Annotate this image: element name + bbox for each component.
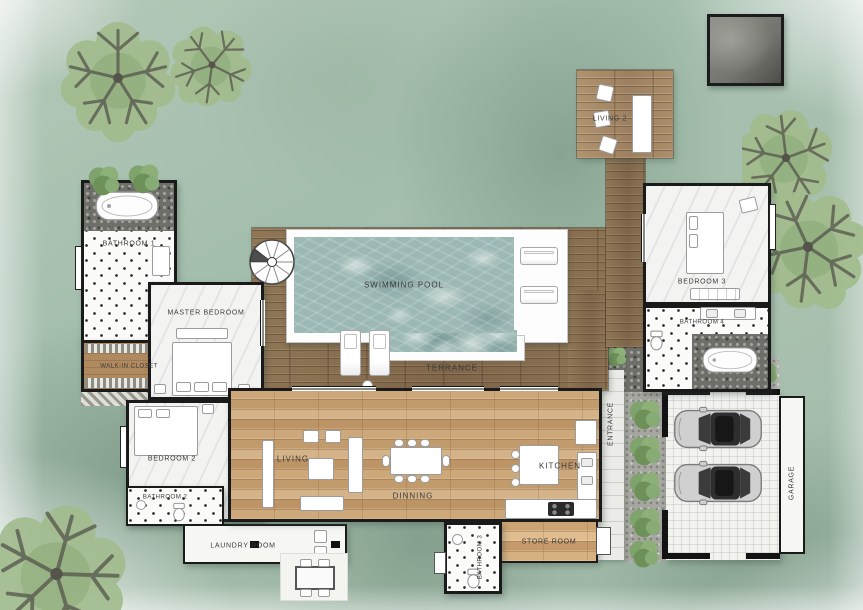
room-label-laundry: LAUNDRY ROOM [210,543,275,550]
label-entrance: ENTRANCE [608,402,615,446]
tree-icon [162,15,262,115]
bar-stool [511,464,520,473]
dining-table [390,447,442,475]
room-label-bathroom2: BATHROOM 2 [143,494,187,501]
shrub-icon [627,468,663,504]
window-sill [75,246,82,290]
bar-stool [511,450,520,459]
bedroom3-dresser [690,288,740,300]
vanity-sink [734,309,746,318]
media-console [262,440,274,508]
room-label-bedroom2: BEDROOM 2 [148,456,196,463]
shrub-icon [627,396,663,432]
pillow [194,382,209,392]
room-label-bedroom3: BEDROOM 3 [678,279,726,286]
stove [548,502,574,516]
pillow [156,409,170,418]
window-sill [769,204,776,250]
master-bench [176,328,228,339]
room-label-bathroom1: BATHROOM 1 [103,241,156,248]
garage-wall [746,553,780,559]
fridge [575,420,597,445]
vanity-sink [706,309,718,318]
bedroom3-sliding-door [641,214,646,262]
label-swimming-pool: SWIMMING POOL [364,281,444,290]
kitchen-sink [581,476,593,485]
car-icon [670,406,766,452]
washer [314,530,327,543]
outdoor-chair [318,589,330,597]
bathroom2-sink [136,500,146,510]
bar-stool [511,478,520,487]
shower-head [452,534,463,545]
living2-cushion [596,84,615,103]
nightstand [202,404,214,414]
pillow [138,409,152,418]
room-label-walk-in-closet: WALK-IN CLOSET [100,363,158,370]
terrace-deck-east [568,290,608,390]
room-label-living: LIVING [277,455,309,464]
outdoor-chair [300,589,312,597]
room-label-living2: LIVING 2 [593,116,627,123]
room-label-bathroom3: BATHROOM 3 [477,535,484,579]
garage-wall [666,553,710,559]
room-label-kitchen: KITCHEN [539,462,581,471]
sliding-glass-door [500,386,558,391]
dining-chair [420,475,430,483]
toilet-icon [649,330,664,351]
room-label-dinning: DINNING [393,492,434,501]
deck-lounger [340,330,361,376]
armchair [325,430,341,443]
label-garage: GARAGE [789,466,796,500]
deck-lounger [369,330,390,376]
utility-pad [707,14,784,86]
shrub-icon [627,536,661,570]
label-terrace: TERRANCE [426,364,478,373]
shrub-icon [627,432,663,468]
sofa [300,496,344,511]
bathroom3-step [434,552,446,574]
dining-chair [420,439,430,447]
coffee-table [308,458,334,480]
master-sliding-door [260,300,265,346]
sliding-glass-door [412,386,484,391]
dining-chair [407,439,417,447]
spiral-stair-icon [248,238,296,286]
pillow [176,382,191,392]
dining-chair [382,455,390,467]
bathtub-icon [702,346,758,374]
pillow [689,234,698,248]
toilet-icon [172,502,186,522]
living2-platform [577,70,673,158]
kitchen-sink [581,458,593,467]
outdoor-chair [300,559,312,567]
car-icon [670,460,766,506]
shrub-icon [86,162,122,198]
nightstand [154,384,166,394]
deck-walkway [606,155,645,347]
sliding-glass-door [292,386,376,391]
dining-chair [407,475,417,483]
dining-chair [394,439,404,447]
pool-lounger [520,286,558,304]
window-sill [120,426,127,468]
dining-chair [394,475,404,483]
bathroom1-vanity [152,246,170,276]
living2-table [632,95,652,153]
pool-step-water [379,330,517,352]
pillow [689,216,698,230]
floor-plan: BATHROOM 1 MASTER BEDROOM WALK-IN CLOSET… [0,0,863,610]
outdoor-table [295,566,335,590]
shrub-icon [126,160,162,196]
dining-chair [442,455,450,467]
shrub-icon [627,504,663,540]
sofa [348,437,363,493]
pillow [212,382,227,392]
room-label-store: STORE ROOM [522,539,577,546]
room-label-master-bedroom: MASTER BEDROOM [167,310,244,317]
room-label-bathroom4: BATHROOM 4 [680,319,724,326]
store-side-step [596,527,611,555]
armchair [303,430,319,443]
outdoor-chair [318,559,330,567]
pool-lounger [520,247,558,265]
wall-post [331,541,340,548]
